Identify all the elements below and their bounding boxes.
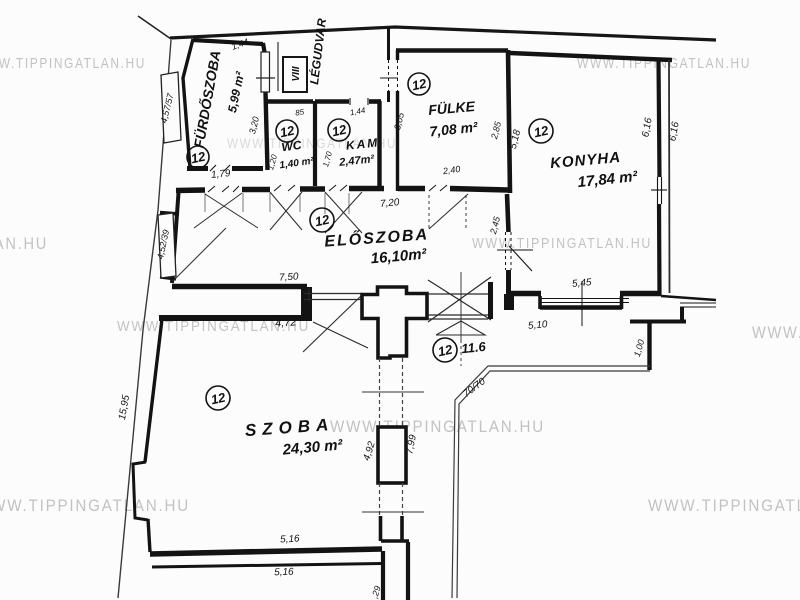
svg-text:WWW.TIPPINGATLAN.HU: WWW.TIPPINGATLAN.HU <box>0 55 146 72</box>
svg-text:WWW.TIPPINGATLAN.HU: WWW.TIPPINGATLAN.HU <box>648 496 800 515</box>
svg-text:7,50: 7,50 <box>279 271 300 283</box>
svg-text:85: 85 <box>295 107 306 117</box>
svg-text:7,20: 7,20 <box>379 197 400 210</box>
svg-text:5,16: 5,16 <box>280 533 300 545</box>
svg-text:5,16: 5,16 <box>274 567 294 579</box>
svg-text:5,10: 5,10 <box>528 319 549 332</box>
svg-text:WWW.TIPPINGATLAN.HU: WWW.TIPPINGATLAN.HU <box>0 234 48 253</box>
svg-text:VIII: VIII <box>291 66 302 81</box>
svg-text:WWW.TIPPINGATLAN.HU: WWW.TIPPINGATLAN.HU <box>0 496 190 515</box>
svg-text:11.6: 11.6 <box>461 339 488 357</box>
svg-text:WC: WC <box>281 138 303 155</box>
svg-text:WWW.TIPPINGATLAN.HU: WWW.TIPPINGATLAN.HU <box>752 323 800 342</box>
svg-text:WWW.TIPPINGATLAN.HU: WWW.TIPPINGATLAN.HU <box>330 417 545 436</box>
svg-text:4,72: 4,72 <box>275 316 297 329</box>
svg-text:5,45: 5,45 <box>572 277 593 290</box>
svg-text:1,79: 1,79 <box>210 168 231 181</box>
